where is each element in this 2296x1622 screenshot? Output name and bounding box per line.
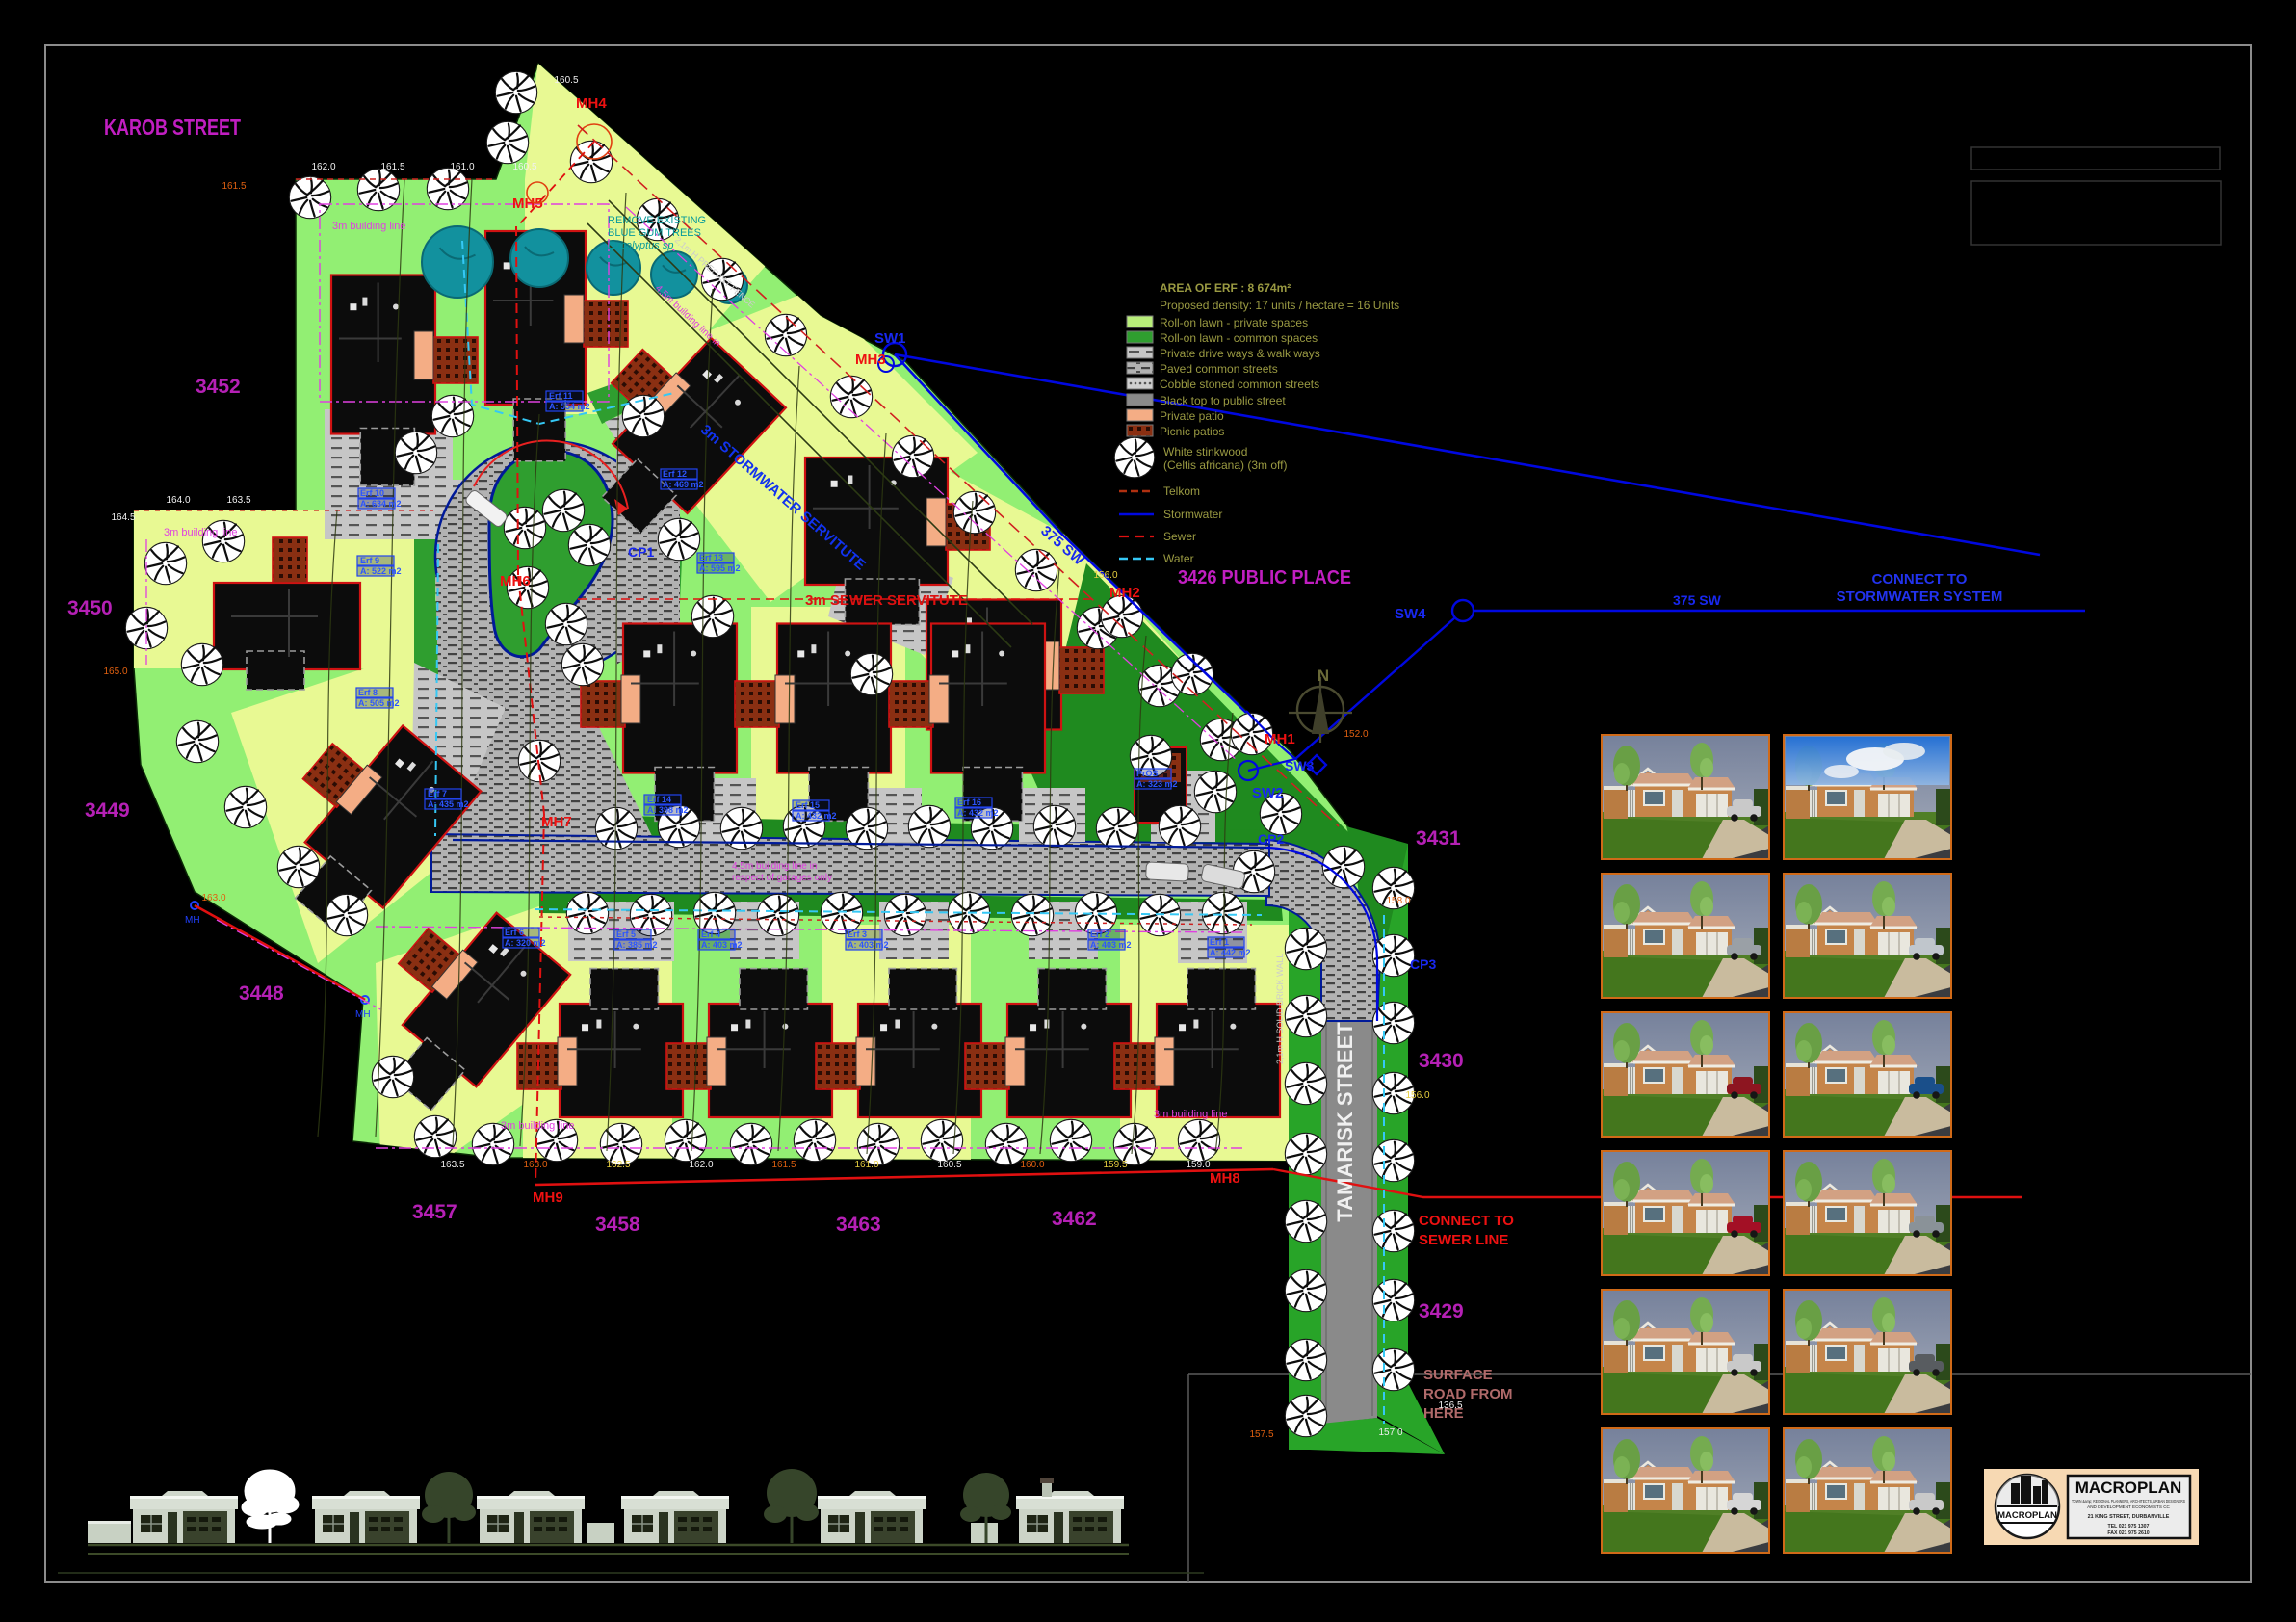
svg-text:3429: 3429 — [1419, 1300, 1464, 1322]
svg-text:Erf 3: Erf 3 — [848, 929, 867, 939]
svg-text:161.5: 161.5 — [222, 181, 246, 192]
svg-text:MH8: MH8 — [1210, 1170, 1240, 1187]
svg-text:A: 403 m2: A: 403 m2 — [701, 940, 743, 950]
svg-text:FAX 021 975 2610: FAX 021 975 2610 — [2107, 1530, 2149, 1536]
svg-text:MH7: MH7 — [541, 814, 572, 830]
svg-text:CP1: CP1 — [628, 544, 654, 560]
svg-text:A: 323 m2: A: 323 m2 — [1136, 779, 1178, 789]
svg-text:CONNECT TO: CONNECT TO — [1419, 1213, 1514, 1229]
svg-text:3449: 3449 — [85, 799, 130, 822]
svg-text:SW2: SW2 — [1252, 785, 1284, 801]
svg-text:A: 403 m2: A: 403 m2 — [1090, 940, 1132, 950]
svg-text:158.0: 158.0 — [1386, 896, 1410, 906]
svg-text:160.5: 160.5 — [554, 75, 578, 86]
svg-text:375 SW: 375 SW — [1673, 592, 1722, 608]
svg-text:CP3: CP3 — [1410, 956, 1436, 972]
svg-text:MH4: MH4 — [576, 95, 607, 112]
svg-text:A: 634 m2: A: 634 m2 — [360, 499, 402, 509]
svg-text:Erf 4: Erf 4 — [701, 929, 720, 939]
svg-text:3463: 3463 — [836, 1214, 881, 1236]
svg-text:MH: MH — [185, 915, 200, 926]
svg-text:136.5: 136.5 — [1438, 1400, 1462, 1411]
svg-text:Erf 9: Erf 9 — [360, 556, 379, 565]
svg-text:3m SEWER SERVITUTE: 3m SEWER SERVITUTE — [805, 592, 968, 609]
svg-text:160.5: 160.5 — [937, 1160, 961, 1170]
svg-text:Erf 14: Erf 14 — [647, 795, 671, 804]
svg-text:Erf 12: Erf 12 — [663, 469, 687, 479]
svg-text:MH3: MH3 — [855, 352, 886, 368]
svg-text:Eucalyptus sp: Eucalyptus sp — [608, 240, 673, 251]
svg-text:156.0: 156.0 — [1405, 1090, 1429, 1101]
svg-text:Erf 10: Erf 10 — [360, 488, 384, 498]
svg-text:Erf 2: Erf 2 — [1090, 929, 1109, 939]
svg-text:3450: 3450 — [67, 597, 113, 619]
svg-text:A: 432 m2: A: 432 m2 — [957, 808, 999, 818]
svg-text:165.0: 165.0 — [103, 667, 127, 677]
svg-text:A: 385 m2: A: 385 m2 — [616, 940, 658, 950]
svg-text:A: 398 m2: A: 398 m2 — [647, 805, 689, 815]
svg-text:A: 442 m2: A: 442 m2 — [1210, 948, 1251, 957]
svg-text:A: 432 m2: A: 432 m2 — [796, 811, 837, 821]
svg-text:Black top to public street: Black top to public street — [1160, 394, 1286, 407]
svg-text:157.0: 157.0 — [1378, 1427, 1402, 1438]
svg-text:AND DEVELOPMENT ECONOMISTS CC: AND DEVELOPMENT ECONOMISTS CC — [2087, 1504, 2170, 1509]
svg-text:Erf 11: Erf 11 — [549, 391, 573, 401]
svg-text:3458: 3458 — [595, 1214, 640, 1236]
svg-text:MH2: MH2 — [1109, 585, 1140, 601]
svg-text:3m building line: 3m building line — [332, 221, 405, 232]
svg-text:162.0: 162.0 — [311, 162, 335, 172]
svg-text:PrOS: PrOS — [1136, 769, 1159, 778]
svg-text:SURFACE: SURFACE — [1423, 1367, 1493, 1383]
svg-text:163.5: 163.5 — [440, 1160, 464, 1170]
svg-text:Erf 5: Erf 5 — [616, 929, 636, 939]
svg-text:respect of garages only: respect of garages only — [732, 873, 832, 883]
svg-text:3426 PUBLIC PLACE: 3426 PUBLIC PLACE — [1178, 567, 1351, 589]
svg-text:163.0: 163.0 — [201, 893, 225, 903]
svg-text:159.0: 159.0 — [1186, 1160, 1210, 1170]
svg-text:SEWER LINE: SEWER LINE — [1419, 1232, 1508, 1248]
svg-text:CP2: CP2 — [1258, 831, 1284, 847]
svg-text:Proposed density: 17 units / h: Proposed density: 17 units / hectare = 1… — [1160, 299, 1399, 312]
svg-text:Erf 15: Erf 15 — [796, 800, 820, 810]
svg-text:MACROPLAN: MACROPLAN — [1997, 1510, 2057, 1521]
svg-text:157.5: 157.5 — [1249, 1429, 1273, 1440]
svg-text:3452: 3452 — [196, 376, 241, 398]
svg-text:BLUE GUM TREES: BLUE GUM TREES — [608, 227, 701, 239]
svg-text:3457: 3457 — [412, 1201, 457, 1223]
svg-text:161.0: 161.0 — [450, 162, 474, 172]
svg-text:3430: 3430 — [1419, 1050, 1464, 1072]
svg-text:TOWN &amp; REGIONAL PLANNERS,: TOWN &amp; REGIONAL PLANNERS, ARCHITECTS… — [2072, 1499, 2185, 1504]
svg-text:SW4: SW4 — [1395, 606, 1426, 622]
svg-text:CONNECT TO: CONNECT TO — [1872, 571, 1968, 588]
svg-text:21 KING STREET, DURBANVILLE: 21 KING STREET, DURBANVILLE — [2088, 1514, 2170, 1520]
svg-text:A: 554 m2: A: 554 m2 — [549, 402, 590, 411]
svg-text:2,1m H SOLID BRICK WALL: 2,1m H SOLID BRICK WALL — [1275, 954, 1285, 1064]
svg-text:161.5: 161.5 — [380, 162, 404, 172]
svg-text:Private drive ways & walk ways: Private drive ways & walk ways — [1160, 347, 1320, 360]
svg-text:3462: 3462 — [1052, 1208, 1097, 1230]
svg-text:160.0: 160.0 — [1020, 1160, 1044, 1170]
svg-text:(Celtis africana) (3m off): (Celtis africana) (3m off) — [1163, 458, 1287, 472]
svg-text:152.0: 152.0 — [1344, 729, 1368, 740]
svg-text:Erf 6: Erf 6 — [505, 928, 524, 937]
svg-text:159.5: 159.5 — [1103, 1160, 1127, 1170]
svg-text:MH1: MH1 — [1265, 731, 1295, 747]
svg-text:Picnic patios: Picnic patios — [1160, 425, 1224, 438]
svg-text:A: 522 m2: A: 522 m2 — [360, 566, 402, 576]
svg-text:KAROB STREET: KAROB STREET — [104, 115, 241, 140]
svg-text:MH6: MH6 — [500, 573, 531, 589]
svg-text:Erf 8: Erf 8 — [358, 688, 378, 697]
svg-text:Erf 16: Erf 16 — [957, 798, 981, 807]
svg-text:Roll-on lawn - common spaces: Roll-on lawn - common spaces — [1160, 331, 1318, 345]
svg-text:156.0: 156.0 — [1093, 570, 1117, 581]
svg-text:MH: MH — [355, 1009, 371, 1020]
svg-text:4,5m building line in: 4,5m building line in — [732, 861, 817, 872]
svg-text:REMOVE EXISTING: REMOVE EXISTING — [608, 215, 706, 226]
svg-text:MACROPLAN: MACROPLAN — [2075, 1478, 2182, 1497]
svg-text:164.5: 164.5 — [111, 512, 135, 523]
svg-text:3m building line: 3m building line — [1154, 1109, 1227, 1120]
svg-text:160.5: 160.5 — [512, 162, 536, 172]
svg-text:162.0: 162.0 — [689, 1160, 713, 1170]
svg-text:A: 469 m2: A: 469 m2 — [663, 480, 704, 489]
svg-text:A: 435 m2: A: 435 m2 — [428, 799, 469, 809]
svg-text:161.5: 161.5 — [771, 1160, 796, 1170]
svg-text:Telkom: Telkom — [1163, 484, 1200, 498]
svg-text:3431: 3431 — [1416, 827, 1461, 850]
svg-text:Erf 1: Erf 1 — [1210, 937, 1229, 947]
svg-text:Water: Water — [1163, 552, 1194, 565]
svg-text:Erf 13: Erf 13 — [699, 553, 723, 562]
svg-text:163.0: 163.0 — [523, 1160, 547, 1170]
svg-text:163.5: 163.5 — [226, 495, 250, 506]
svg-text:Sewer: Sewer — [1163, 530, 1196, 543]
svg-text:TAMARISK STREET: TAMARISK STREET — [1333, 1022, 1357, 1222]
svg-text:A: 505 m2: A: 505 m2 — [358, 698, 400, 708]
svg-text:MH9: MH9 — [533, 1190, 563, 1206]
svg-text:Roll-on lawn - private spaces: Roll-on lawn - private spaces — [1160, 316, 1308, 329]
svg-text:A: 403 m2: A: 403 m2 — [848, 940, 889, 950]
svg-text:SW3: SW3 — [1285, 758, 1315, 773]
svg-text:ROAD FROM: ROAD FROM — [1423, 1386, 1513, 1402]
svg-text:Paved common streets: Paved common streets — [1160, 362, 1278, 376]
svg-text:Private patio: Private patio — [1160, 409, 1224, 423]
svg-text:161.0: 161.0 — [854, 1160, 878, 1170]
svg-text:N: N — [1318, 667, 1329, 685]
svg-text:A: 320 m2: A: 320 m2 — [505, 938, 546, 948]
svg-text:TEL 021 975 1307: TEL 021 975 1307 — [2108, 1524, 2150, 1530]
svg-text:3448: 3448 — [239, 982, 284, 1005]
svg-text:AREA OF ERF : 8 674m²: AREA OF ERF : 8 674m² — [1160, 281, 1291, 295]
svg-text:Stormwater: Stormwater — [1163, 508, 1222, 521]
svg-text:A: 595 m2: A: 595 m2 — [699, 563, 741, 573]
svg-text:SW1: SW1 — [874, 330, 906, 347]
svg-text:3m building line: 3m building line — [164, 527, 237, 538]
svg-text:STORMWATER SYSTEM: STORMWATER SYSTEM — [1837, 589, 2003, 605]
svg-text:White stinkwood: White stinkwood — [1163, 445, 1247, 458]
svg-text:164.0: 164.0 — [166, 495, 190, 506]
svg-text:Erf 7: Erf 7 — [428, 789, 447, 798]
svg-text:Cobble stoned common streets: Cobble stoned common streets — [1160, 378, 1319, 391]
svg-text:162.5: 162.5 — [606, 1160, 630, 1170]
svg-text:3m building line: 3m building line — [501, 1120, 574, 1132]
